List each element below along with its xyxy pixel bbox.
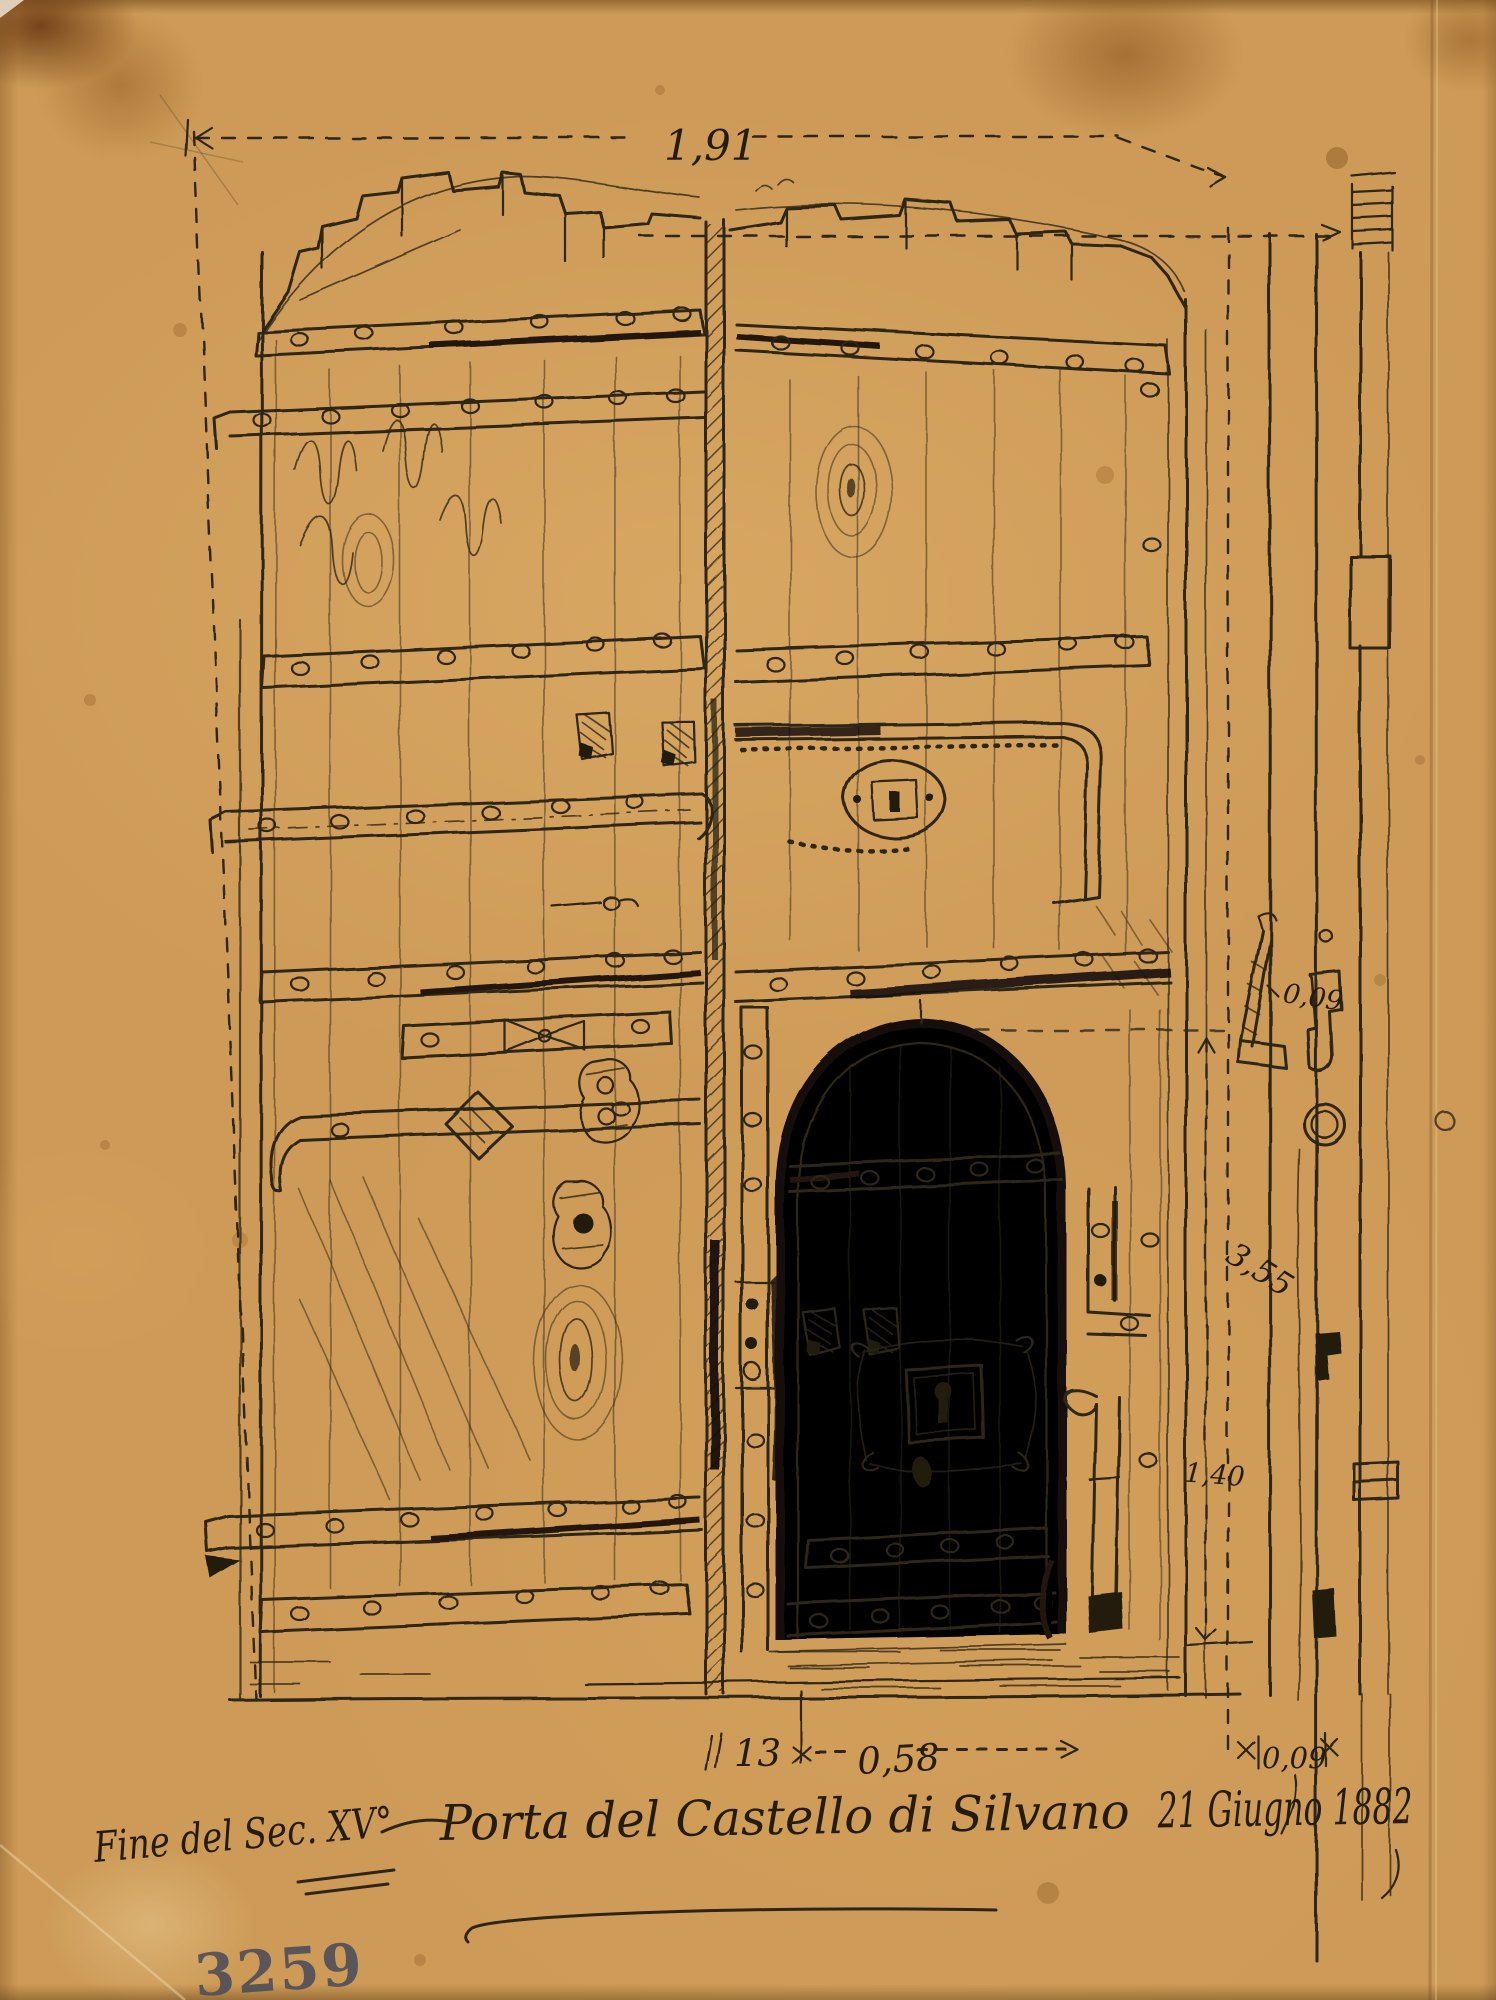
escutcheon-lower-left: [553, 1181, 610, 1267]
paper-sheet: 1,91 0,09 3,55 1,40 13 0,58 0,09 Fine de…: [0, 0, 1496, 2000]
door-drawing: 1,91 0,09 3,55 1,40 13 0,58 0,09 Fine de…: [0, 0, 1496, 2000]
ground-line: [230, 1650, 1240, 1700]
dim-overall-height: 3,55: [1220, 1235, 1301, 1305]
escutcheon-upper-left: [579, 1059, 638, 1142]
caption-title: Porta del Castello di Silvano21 Giugno 1…: [438, 1778, 1413, 1852]
caption-period: Fine del Sec. XV°: [91, 1797, 395, 1872]
dim-wicket-width: 0,58: [856, 1736, 941, 1783]
dim-wicket-height: 1,40: [1184, 1458, 1246, 1493]
caption-period-underline: [298, 1870, 394, 1894]
iron-bands-left: [206, 308, 711, 1633]
dim-center-post: 13: [734, 1732, 781, 1775]
ink-sketch: [186, 120, 1455, 1960]
caption-title-underline: [466, 1909, 996, 1942]
sliding-bolt: [736, 722, 1102, 903]
labels: 1,91 0,09 3,55 1,40 13 0,58 0,09 Fine de…: [91, 121, 1413, 2000]
dim-leaf-thickness: 0,09: [1281, 978, 1345, 1017]
wall-strip-right: [1238, 172, 1455, 1960]
dim-frame-thickness: 0,09: [1262, 1741, 1327, 1775]
dim-overall-width: 1,91: [664, 121, 758, 170]
dimension-lines: [186, 120, 1340, 1834]
center-post: [706, 220, 724, 1694]
wicket-door: [776, 1000, 1066, 1666]
inventory-number: 3259: [192, 1930, 366, 2000]
